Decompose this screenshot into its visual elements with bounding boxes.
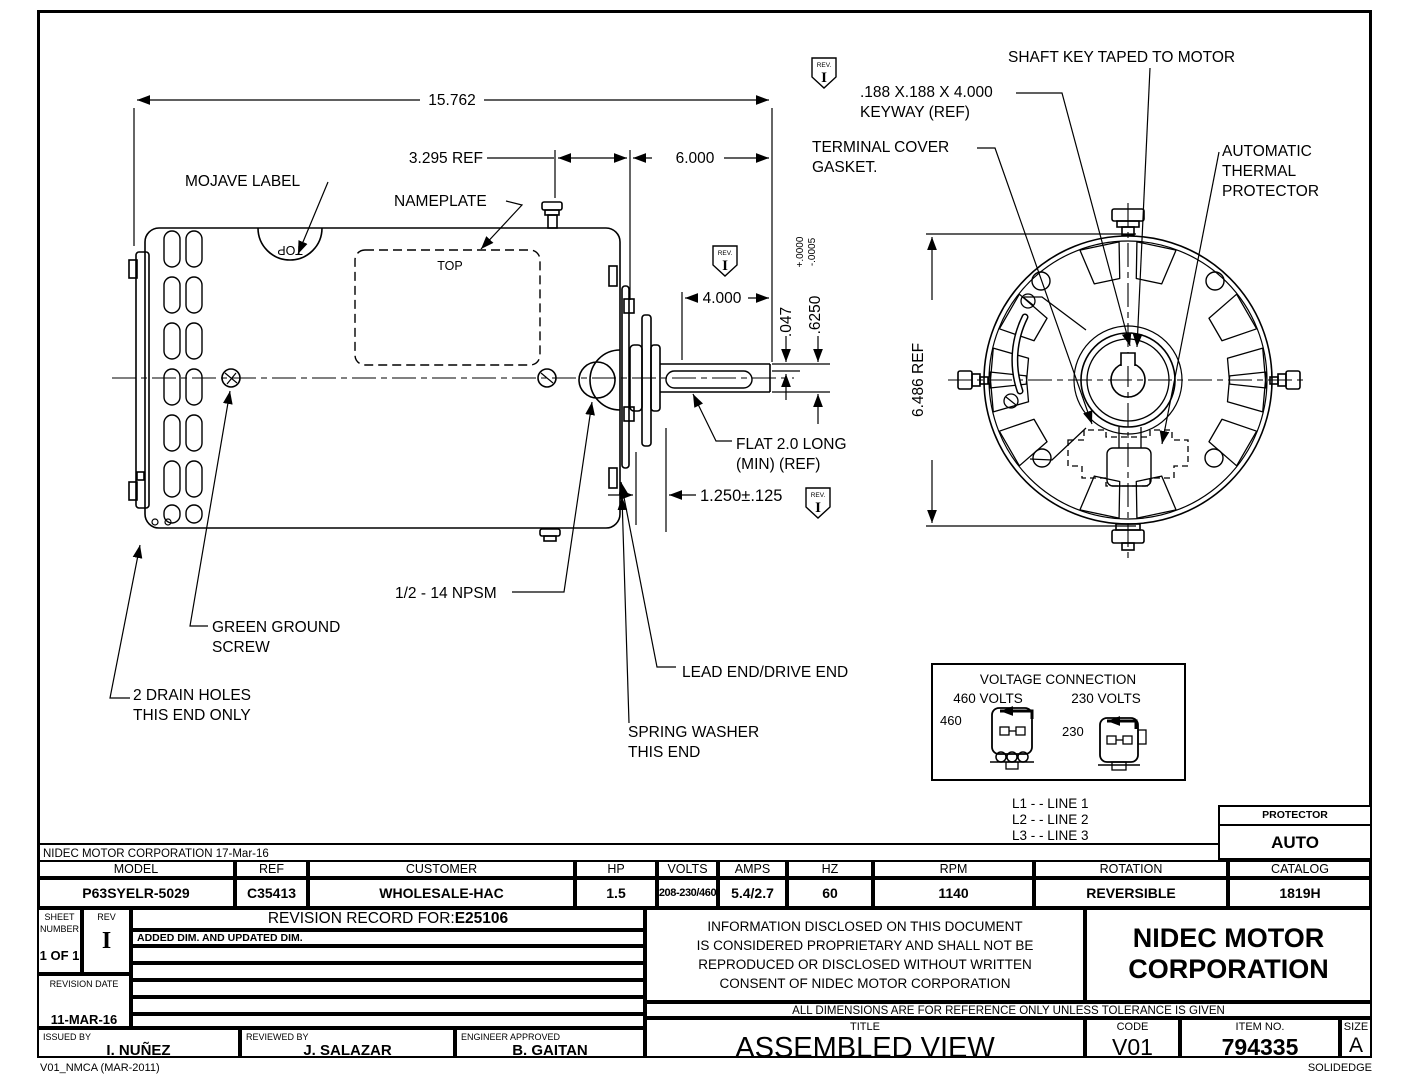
issued-by-label: ISSUED BY (39, 1030, 238, 1042)
revision-note-row: ADDED DIM. AND UPDATED DIM. (131, 930, 645, 946)
disclaimer-line-4: CONSENT OF NIDEC MOTOR CORPORATION (647, 974, 1083, 993)
footer-left-note: V01_NMCA (MAR-2011) (40, 1062, 160, 1074)
revision-note: ADDED DIM. AND UPDATED DIM. (137, 932, 303, 944)
rev-cell: REV I (82, 908, 131, 974)
shaft-key-label: SHAFT KEY TAPED TO MOTOR (1008, 49, 1235, 66)
dim-6000: 6.000 (676, 150, 715, 167)
thermal-label-1: AUTOMATIC (1222, 143, 1312, 160)
protector-value: AUTO (1220, 826, 1370, 853)
footer-right-note: SOLIDEDGE (1230, 1062, 1372, 1074)
rev-tag: REV. (811, 492, 826, 499)
voltage-460-value: 460 (940, 713, 962, 728)
disclaimer-cell: INFORMATION DISCLOSED ON THIS DOCUMENT I… (645, 908, 1085, 1002)
motor-icon-460 (990, 708, 1034, 769)
tol-minus: -.0005 (807, 237, 818, 266)
size-label: SIZE (1342, 1020, 1370, 1032)
issued-by-value: I. NUÑEZ (39, 1042, 238, 1058)
spec-value-rpm: 1140 (873, 878, 1034, 908)
motor-end-view (948, 203, 1308, 562)
dim-3295: 3.295 REF (409, 150, 483, 167)
title-value: ASSEMBLED VIEW (647, 1032, 1083, 1058)
rev-tag: REV. (718, 250, 733, 257)
sheet-value: 1 OF 1 (39, 948, 80, 963)
tol-plus: +.0000 (795, 236, 806, 267)
revision-date-label: REVISION DATE (39, 976, 129, 989)
dim-6250: .6250 (807, 295, 824, 334)
spec-header-catalog: CATALOG (1228, 860, 1372, 878)
npsm-label: 1/2 - 14 NPSM (395, 585, 497, 602)
rev-tag: REV. (817, 62, 832, 69)
code-value: V01 (1087, 1034, 1178, 1058)
motor-side-view (112, 202, 794, 541)
engineer-approved-cell: ENGINEER APPROVED B. GAITAN (455, 1028, 645, 1058)
keyway-label-2: KEYWAY (REF) (860, 104, 970, 121)
item-no-cell: ITEM NO. 794335 (1180, 1018, 1340, 1058)
protector-box: PROTECTOR AUTO (1218, 805, 1372, 860)
rev-marker: REV. I (806, 488, 830, 518)
keyway-flat (666, 371, 752, 388)
spec-table: MODEL REF CUSTOMER HP VOLTS AMPS HZ RPM … (37, 860, 1372, 908)
top-marking: TOP (277, 243, 302, 257)
engineer-approved-label: ENGINEER APPROVED (457, 1030, 643, 1042)
size-value: A (1342, 1034, 1370, 1058)
dim-047: .047 (778, 307, 795, 337)
spec-value-hz: 60 (787, 878, 873, 908)
revision-record-number: E25106 (455, 910, 508, 928)
spec-header-volts: VOLTS (657, 860, 718, 878)
spec-value-catalog: 1819H (1228, 878, 1372, 908)
rev-letter: I (815, 500, 821, 516)
drawing-area: 15.762 3.295 REF 6.000 4.000 .047 .6250 … (37, 10, 1372, 843)
drain-label-1: 2 DRAIN HOLES (133, 687, 251, 704)
revision-record-label: REVISION RECORD FOR: (268, 910, 455, 928)
thermal-label-3: PROTECTOR (1222, 183, 1319, 200)
revision-empty-row (131, 1014, 645, 1028)
ground-label-2: SCREW (212, 639, 270, 656)
voltage-230-value: 230 (1062, 724, 1084, 739)
drawing-sheet: 15.762 3.295 REF 6.000 4.000 .047 .6250 … (0, 0, 1408, 1088)
rev-label: REV (84, 910, 129, 922)
spec-header-hp: HP (575, 860, 657, 878)
line-legend: L1 - - LINE 1 L2 - - LINE 2 L3 - - LINE … (1012, 796, 1089, 843)
corp-date-note: NIDEC MOTOR CORPORATION 17-Mar-16 (37, 843, 1372, 860)
size-cell: SIZE A (1340, 1018, 1372, 1058)
mojave-label: MOJAVE LABEL (185, 173, 301, 190)
revision-empty-row (131, 980, 645, 997)
disclaimer-line-2: IS CONSIDERED PROPRIETARY AND SHALL NOT … (647, 936, 1083, 955)
terminal-label-1: TERMINAL COVER (812, 139, 949, 156)
vent-slots (164, 231, 202, 523)
issued-by-cell: ISSUED BY I. NUÑEZ (37, 1028, 240, 1058)
drain-label-2: THIS END ONLY (133, 707, 251, 724)
spec-value-customer: WHOLESALE-HAC (308, 878, 575, 908)
rev-letter: I (722, 258, 728, 274)
dim-overall: 15.762 (428, 92, 475, 109)
legend-line-3: L3 - - LINE 3 (1012, 828, 1089, 843)
rev-letter: I (821, 70, 827, 86)
spec-value-amps: 5.4/2.7 (718, 878, 787, 908)
dim-4000: 4.000 (703, 290, 742, 307)
nameplate-label: NAMEPLATE (394, 193, 487, 210)
spring-label-1: SPRING WASHER (628, 724, 759, 741)
item-no-value: 794335 (1182, 1034, 1338, 1058)
spec-header-rotation: ROTATION (1034, 860, 1228, 878)
title-label: TITLE (647, 1020, 1083, 1032)
company-logo-cell: NIDEC MOTOR CORPORATION (1085, 908, 1372, 1002)
spec-value-volts: 208-230/460 (657, 878, 718, 908)
code-label: CODE (1087, 1020, 1178, 1032)
item-no-label: ITEM NO. (1182, 1020, 1338, 1032)
flat-label-1: FLAT 2.0 LONG (736, 436, 847, 453)
spring-label-2: THIS END (628, 744, 700, 761)
spec-header-hz: HZ (787, 860, 873, 878)
engineer-approved-value: B. GAITAN (457, 1042, 643, 1058)
company-name-1: NIDEC MOTOR (1087, 923, 1370, 954)
legend-line-2: L2 - - LINE 2 (1012, 812, 1089, 827)
spec-value-rotation: REVERSIBLE (1034, 878, 1228, 908)
voltage-title: VOLTAGE CONNECTION (980, 672, 1136, 687)
keyway-notch (1121, 353, 1135, 366)
revision-empty-row (131, 997, 645, 1014)
company-name-2: CORPORATION (1087, 954, 1370, 985)
revision-empty-row (131, 963, 645, 980)
spec-header-customer: CUSTOMER (308, 860, 575, 878)
dim-1250: 1.250±.125 (700, 487, 782, 505)
flat-label-2: (MIN) (REF) (736, 456, 820, 473)
rev-marker: REV. I (812, 58, 836, 88)
spec-header-amps: AMPS (718, 860, 787, 878)
drawing-labels: 15.762 3.295 REF 6.000 4.000 .047 .6250 … (133, 49, 1319, 761)
sheet-label-2: NUMBER (39, 922, 80, 934)
rev-marker: REV. I (713, 246, 737, 276)
ground-label-1: GREEN GROUND (212, 619, 340, 636)
reviewed-by-cell: REVIEWED BY J. SALAZAR (240, 1028, 455, 1058)
dimensions (134, 100, 1136, 532)
spec-header-ref: REF (235, 860, 308, 878)
thermal-label-2: THERMAL (1222, 163, 1296, 180)
disclaimer-line-3: REPRODUCED OR DISCLOSED WITHOUT WRITTEN (647, 955, 1083, 974)
revision-empty-row (131, 946, 645, 963)
terminal-label-2: GASKET. (812, 159, 877, 176)
motor-icon-230 (1098, 718, 1146, 770)
lead-end-label: LEAD END/DRIVE END (682, 664, 848, 681)
reviewed-by-value: J. SALAZAR (242, 1042, 453, 1058)
spec-value-hp: 1.5 (575, 878, 657, 908)
conduit-hub (579, 362, 615, 398)
spec-value-model: P63SYELR-5029 (37, 878, 235, 908)
voltage-230-header: 230 VOLTS (1071, 691, 1141, 706)
rev-value: I (84, 928, 129, 955)
spec-header-model: MODEL (37, 860, 235, 878)
dim-6486: 6.486 REF (910, 343, 927, 417)
revision-date-cell: REVISION DATE 11-MAR-16 (37, 974, 131, 1028)
voltage-460-header: 460 VOLTS (953, 691, 1023, 706)
voltage-connection-box: VOLTAGE CONNECTION 460 VOLTS 230 VOLTS 4… (932, 664, 1185, 780)
title-cell: TITLE ASSEMBLED VIEW (645, 1018, 1085, 1058)
spec-value-ref: C35413 (235, 878, 308, 908)
reviewed-by-label: REVIEWED BY (242, 1030, 453, 1042)
disclaimer-line-1: INFORMATION DISCLOSED ON THIS DOCUMENT (647, 917, 1083, 936)
legend-line-1: L1 - - LINE 1 (1012, 796, 1089, 811)
spec-header-rpm: RPM (873, 860, 1034, 878)
revision-date-value: 11-MAR-16 (39, 1012, 129, 1027)
protector-label: PROTECTOR (1220, 807, 1370, 826)
tolerance-note-cell: ALL DIMENSIONS ARE FOR REFERENCE ONLY UN… (645, 1002, 1372, 1018)
sheet-number-cell: SHEET NUMBER 1 OF 1 (37, 908, 82, 974)
code-cell: CODE V01 (1085, 1018, 1180, 1058)
keyway-label-1: .188 X.188 X 4.000 (860, 84, 993, 101)
revision-record-header: REVISION RECORD FOR:E25106 (131, 908, 645, 930)
sheet-label-1: SHEET (39, 910, 80, 922)
nameplate-top: TOP (437, 259, 462, 273)
